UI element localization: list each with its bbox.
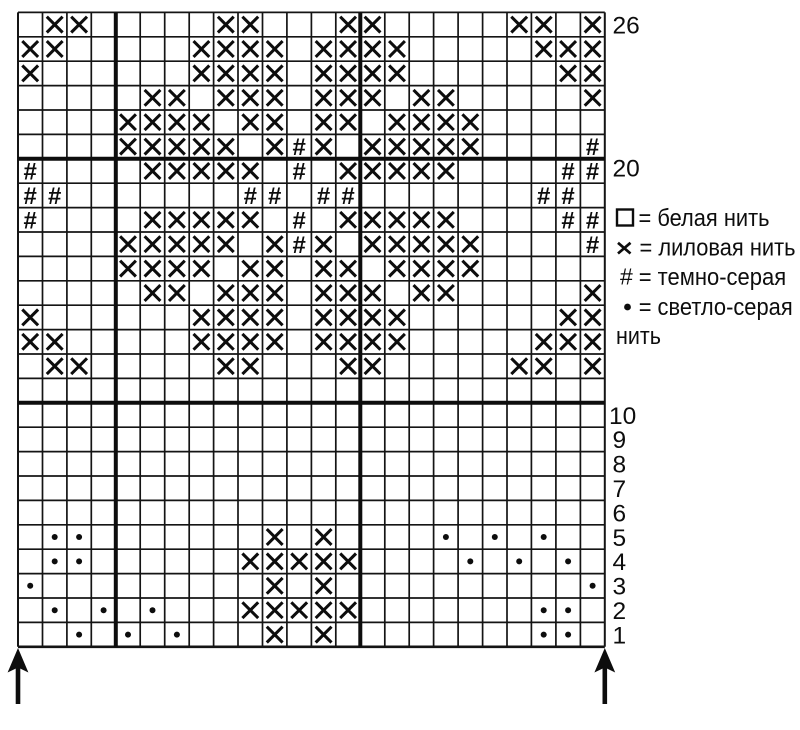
svg-text:#: # xyxy=(293,232,306,259)
svg-text:2: 2 xyxy=(613,598,627,625)
svg-text:#: # xyxy=(537,183,550,210)
svg-text:#: # xyxy=(561,159,574,186)
svg-text:20: 20 xyxy=(613,156,640,183)
svg-text:#: # xyxy=(268,183,281,210)
svg-text:#: # xyxy=(341,183,354,210)
svg-text:#: # xyxy=(293,159,306,186)
svg-text:9: 9 xyxy=(613,427,627,454)
svg-text:#: # xyxy=(24,207,37,234)
svg-text:26: 26 xyxy=(613,12,640,39)
svg-text:7: 7 xyxy=(613,476,627,503)
svg-text:= темно-серая: = темно-серая xyxy=(639,264,787,291)
svg-text:#: # xyxy=(561,183,574,210)
svg-text:#: # xyxy=(293,207,306,234)
svg-text:#: # xyxy=(586,159,599,186)
svg-text:= лиловая нить: = лиловая нить xyxy=(640,235,796,262)
svg-text:= светло-серая: = светло-серая xyxy=(639,294,793,321)
svg-text:6: 6 xyxy=(613,500,627,527)
svg-text:#: # xyxy=(586,232,599,259)
svg-text:#: # xyxy=(293,134,306,161)
svg-text:#: # xyxy=(561,207,574,234)
svg-text:3: 3 xyxy=(613,574,627,601)
svg-text:#: # xyxy=(48,183,61,210)
svg-text:#: # xyxy=(24,159,37,186)
svg-text:1: 1 xyxy=(613,622,627,649)
svg-text:#: # xyxy=(24,183,37,210)
svg-text:10: 10 xyxy=(609,403,636,430)
svg-text:#: # xyxy=(317,183,330,210)
svg-text:#: # xyxy=(586,207,599,234)
svg-text:#: # xyxy=(586,134,599,161)
svg-text:нить: нить xyxy=(616,323,661,350)
svg-text:8: 8 xyxy=(613,452,627,479)
svg-text:4: 4 xyxy=(613,549,627,576)
svg-text:#: # xyxy=(620,264,633,290)
svg-text:= белая нить: = белая нить xyxy=(639,205,770,232)
svg-text:#: # xyxy=(244,183,257,210)
svg-text:5: 5 xyxy=(613,525,627,552)
